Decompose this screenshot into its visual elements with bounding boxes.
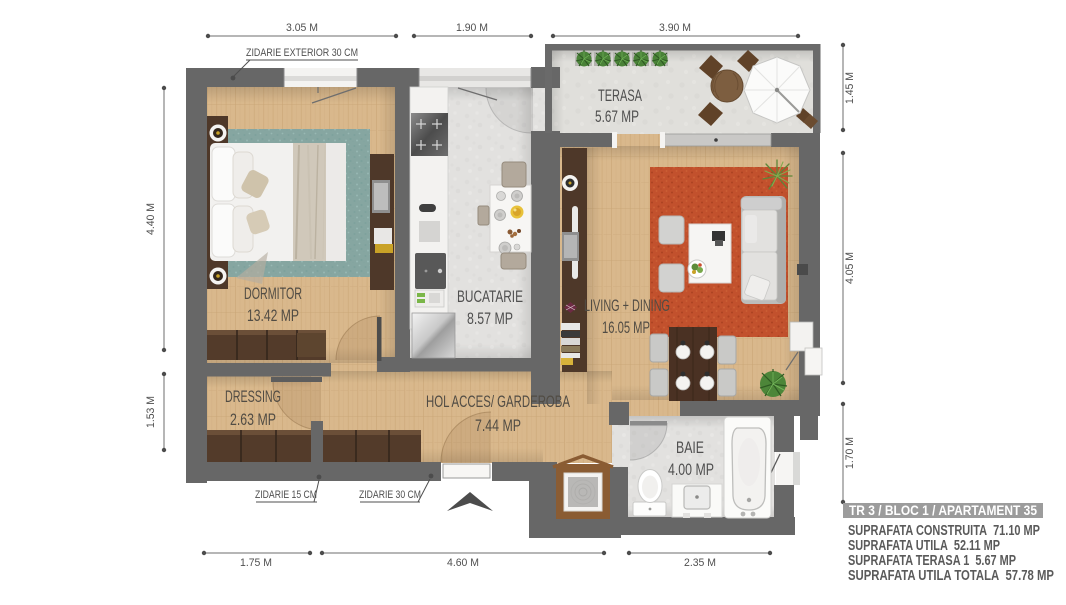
svg-text:ZIDARIE 15 CM: ZIDARIE 15 CM xyxy=(255,489,317,501)
svg-text:SUPRAFATA TERASA 1 5.67 MP: SUPRAFATA TERASA 1 5.67 MP xyxy=(848,553,1016,569)
svg-text:3.05 M: 3.05 M xyxy=(286,22,318,34)
svg-text:1.75 M: 1.75 M xyxy=(240,557,272,569)
svg-text:4.60 M: 4.60 M xyxy=(447,557,479,569)
svg-text:1.90 M: 1.90 M xyxy=(456,22,488,34)
svg-text:SUPRAFATA CONSTRUITA 71.10 MP: SUPRAFATA CONSTRUITA 71.10 MP xyxy=(848,523,1040,539)
svg-text:4.05 M: 4.05 M xyxy=(844,252,856,284)
svg-text:ZIDARIE EXTERIOR 30 CM: ZIDARIE EXTERIOR 30 CM xyxy=(246,47,358,59)
svg-text:1.45 M: 1.45 M xyxy=(844,72,856,104)
svg-text:BAIE: BAIE xyxy=(676,438,704,457)
svg-text:13.42 MP: 13.42 MP xyxy=(247,306,299,325)
svg-text:DORMITOR: DORMITOR xyxy=(244,284,302,303)
svg-text:LIVING + DINING: LIVING + DINING xyxy=(584,296,670,315)
svg-text:1.70 M: 1.70 M xyxy=(844,437,856,469)
svg-text:3.90 M: 3.90 M xyxy=(659,22,691,34)
svg-text:TR 3 / BLOC 1 / APARTAMENT 35: TR 3 / BLOC 1 / APARTAMENT 35 xyxy=(849,502,1037,518)
svg-text:8.57 MP: 8.57 MP xyxy=(467,309,513,328)
svg-text:2.63 MP: 2.63 MP xyxy=(230,410,276,429)
svg-text:BUCATARIE: BUCATARIE xyxy=(457,287,523,306)
svg-text:7.44 MP: 7.44 MP xyxy=(475,416,521,435)
svg-text:16.05 MP: 16.05 MP xyxy=(602,318,650,337)
svg-text:1.53 M: 1.53 M xyxy=(145,396,157,428)
svg-text:DRESSING: DRESSING xyxy=(225,387,281,406)
svg-text:SUPRAFATA UTILA 52.11 MP: SUPRAFATA UTILA 52.11 MP xyxy=(848,538,1000,554)
svg-text:SUPRAFATA UTILA TOTALA 57.78: SUPRAFATA UTILA TOTALA 57.78 MP xyxy=(848,568,1054,584)
svg-text:5.67 MP: 5.67 MP xyxy=(595,107,639,126)
svg-text:4.40 M: 4.40 M xyxy=(145,203,157,235)
svg-text:HOL ACCES/ GARDEROBA: HOL ACCES/ GARDEROBA xyxy=(426,392,570,411)
svg-text:TERASA: TERASA xyxy=(598,86,642,105)
svg-text:ZIDARIE 30 CM: ZIDARIE 30 CM xyxy=(359,489,421,501)
svg-text:4.00 MP: 4.00 MP xyxy=(668,460,714,479)
svg-text:2.35 M: 2.35 M xyxy=(684,557,716,569)
